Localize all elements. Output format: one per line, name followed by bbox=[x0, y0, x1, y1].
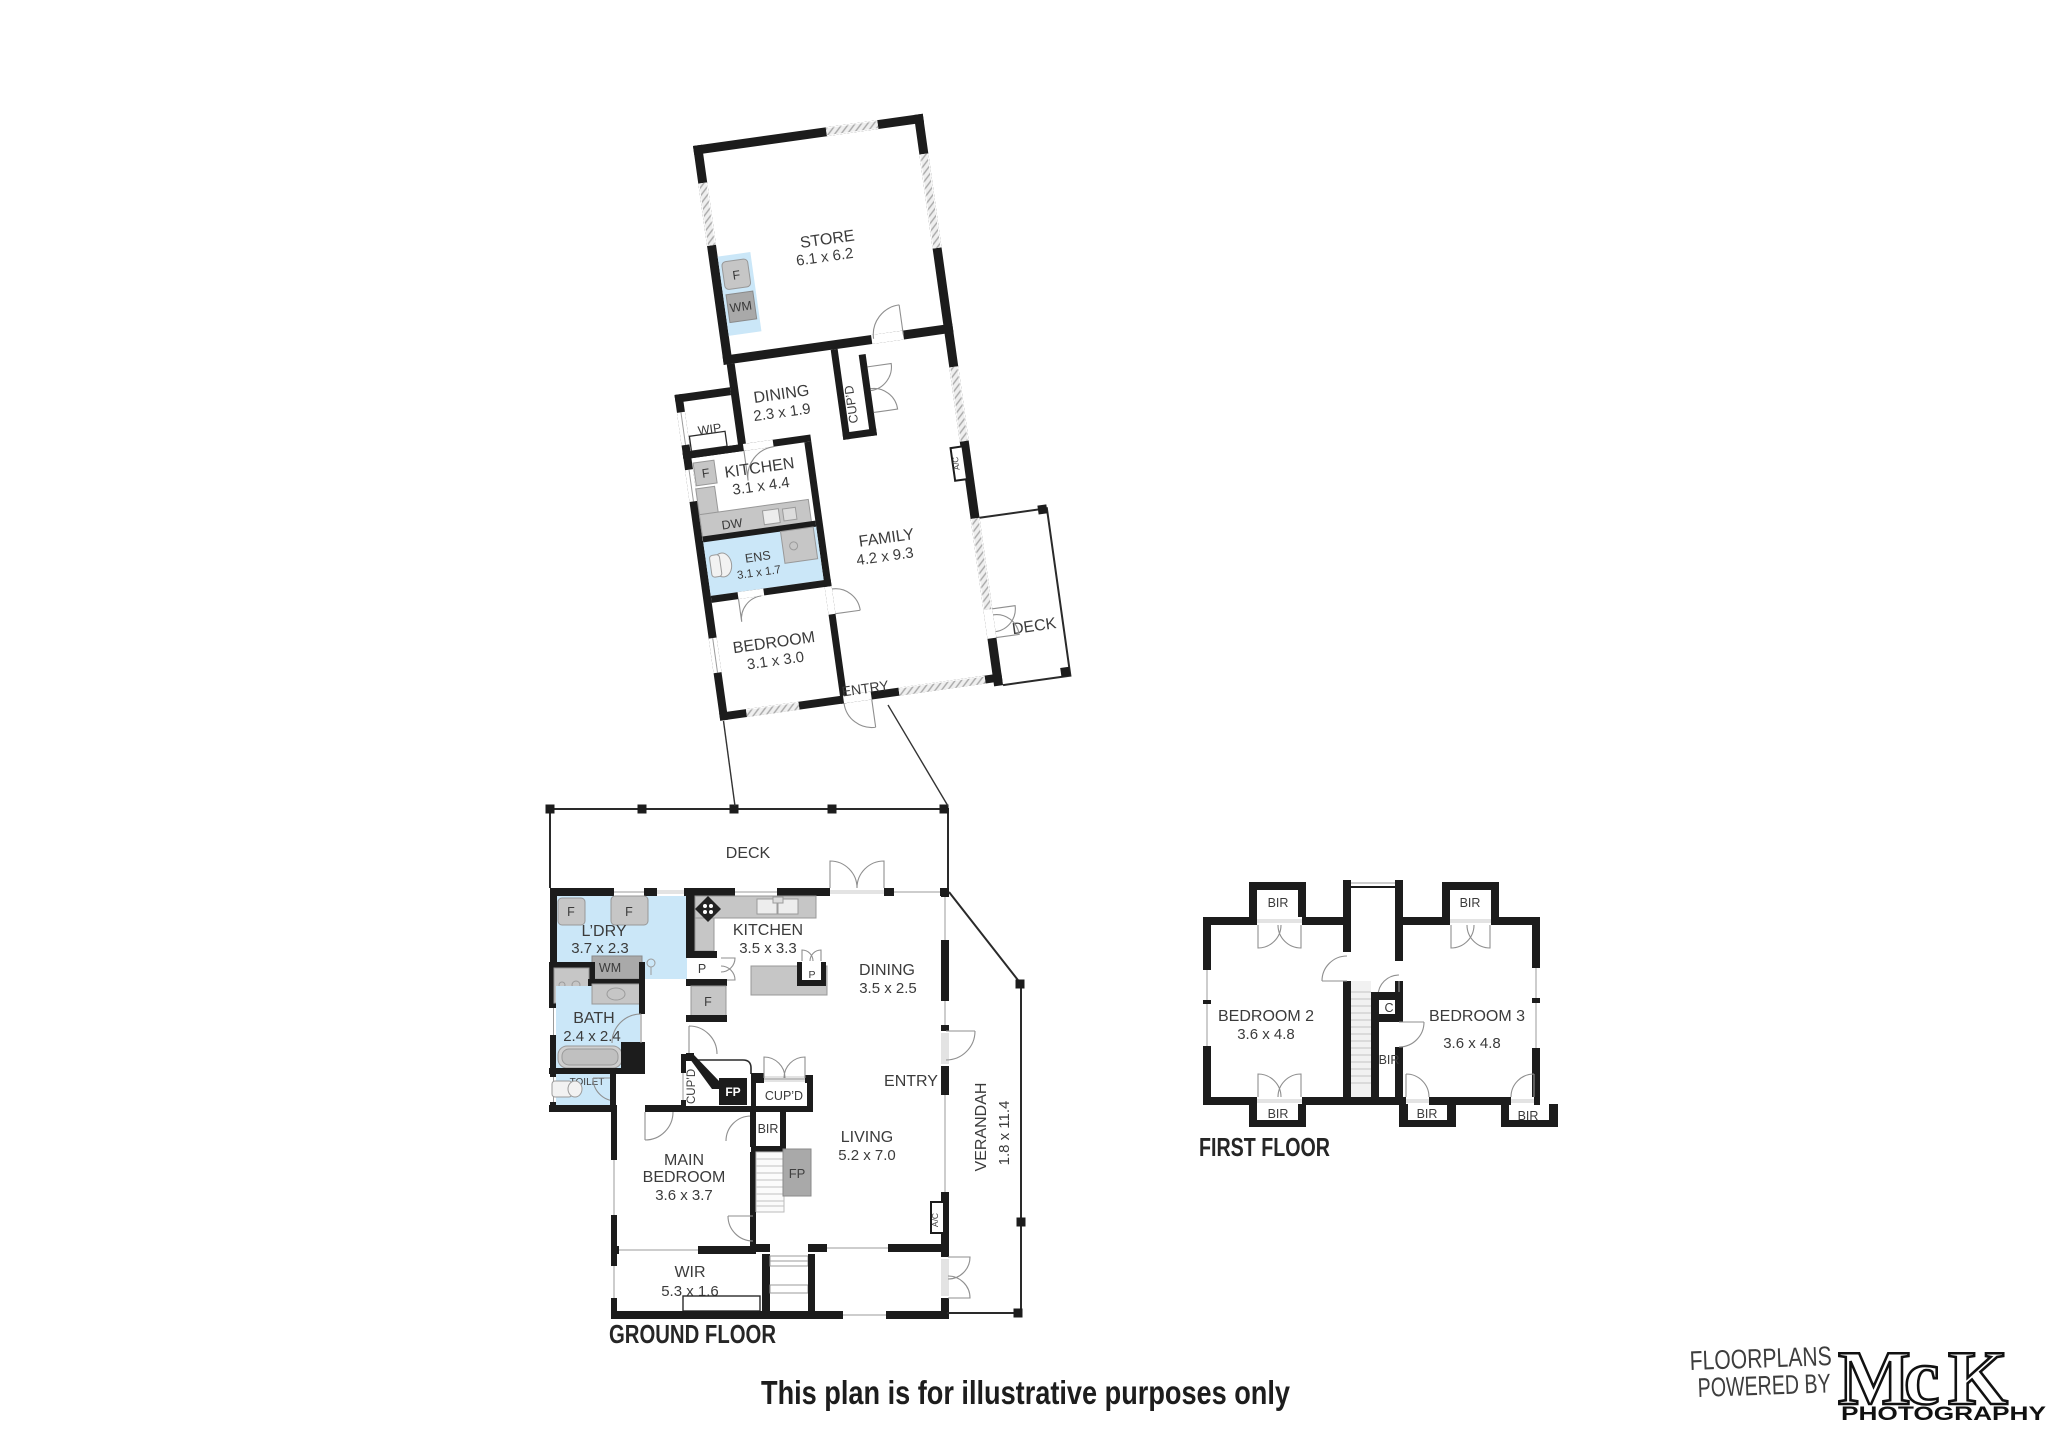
svg-text:3.5 x 3.3: 3.5 x 3.3 bbox=[739, 940, 797, 957]
svg-text:BIR: BIR bbox=[1268, 1107, 1289, 1121]
svg-text:BIR: BIR bbox=[1460, 896, 1481, 910]
svg-text:PHOTOGRAPHY: PHOTOGRAPHY bbox=[1841, 1404, 2046, 1425]
svg-text:ENTRY: ENTRY bbox=[884, 1073, 938, 1090]
svg-text:F: F bbox=[625, 905, 633, 919]
svg-text:BEDROOM 2: BEDROOM 2 bbox=[1218, 1008, 1314, 1025]
svg-text:CUP’D: CUP’D bbox=[765, 1089, 803, 1103]
svg-text:BIR: BIR bbox=[1417, 1107, 1438, 1121]
svg-text:VERANDAH: VERANDAH bbox=[973, 1083, 990, 1172]
svg-text:BIR: BIR bbox=[1518, 1109, 1539, 1123]
svg-text:POWERED BY: POWERED BY bbox=[1697, 1368, 1831, 1403]
svg-text:LIVING: LIVING bbox=[841, 1129, 893, 1146]
svg-text:3.7 x 2.3: 3.7 x 2.3 bbox=[571, 940, 629, 957]
svg-text:BEDROOM: BEDROOM bbox=[643, 1169, 726, 1186]
svg-text:WIR: WIR bbox=[674, 1264, 705, 1281]
svg-text:GROUND FLOOR: GROUND FLOOR bbox=[609, 1319, 776, 1349]
svg-text:MAIN: MAIN bbox=[664, 1152, 704, 1169]
svg-text:BIR: BIR bbox=[1379, 1053, 1400, 1067]
svg-text:KITCHEN: KITCHEN bbox=[733, 922, 803, 939]
svg-text:3.5 x 2.5: 3.5 x 2.5 bbox=[859, 980, 917, 997]
svg-text:BIR: BIR bbox=[1268, 896, 1289, 910]
svg-text:WM: WM bbox=[599, 961, 621, 975]
svg-text:3.6 x 3.7: 3.6 x 3.7 bbox=[655, 1187, 713, 1204]
svg-text:A/C: A/C bbox=[930, 1213, 940, 1227]
svg-text:FP: FP bbox=[789, 1166, 806, 1181]
svg-text:A/C: A/C bbox=[951, 456, 962, 471]
svg-text:DECK: DECK bbox=[726, 845, 771, 862]
svg-text:1.8 x 11.4: 1.8 x 11.4 bbox=[996, 1101, 1013, 1166]
svg-text:C: C bbox=[1384, 1001, 1393, 1015]
svg-text:F: F bbox=[567, 905, 575, 919]
svg-text:5.2 x 7.0: 5.2 x 7.0 bbox=[838, 1147, 896, 1164]
svg-text:This plan is for illustrative: This plan is for illustrative purposes o… bbox=[761, 1374, 1291, 1411]
svg-text:FP: FP bbox=[725, 1085, 740, 1099]
svg-text:P: P bbox=[808, 969, 815, 981]
svg-text:P: P bbox=[698, 962, 706, 976]
svg-text:L’DRY: L’DRY bbox=[581, 923, 626, 940]
svg-text:DW: DW bbox=[721, 516, 744, 533]
svg-text:BEDROOM 3: BEDROOM 3 bbox=[1429, 1008, 1525, 1025]
svg-text:F: F bbox=[704, 995, 712, 1009]
svg-text:FIRST FLOOR: FIRST FLOOR bbox=[1199, 1132, 1330, 1162]
svg-text:BIR: BIR bbox=[758, 1122, 779, 1136]
svg-text:3.6 x 4.8: 3.6 x 4.8 bbox=[1443, 1035, 1501, 1052]
svg-text:BATH: BATH bbox=[573, 1010, 614, 1027]
svg-text:CUP’D: CUP’D bbox=[686, 1069, 698, 1104]
svg-text:3.6 x 4.8: 3.6 x 4.8 bbox=[1237, 1026, 1295, 1043]
svg-text:DINING: DINING bbox=[859, 962, 915, 979]
